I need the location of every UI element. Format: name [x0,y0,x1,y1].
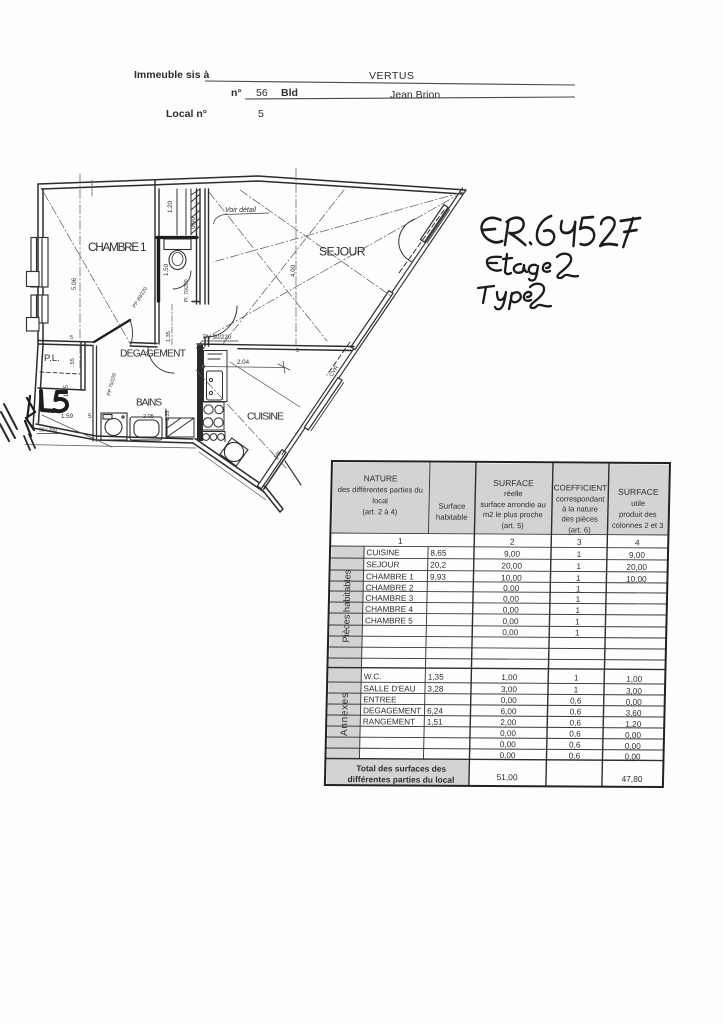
svg-text:DEGAGEMENT: DEGAGEMENT [120,349,186,360]
svg-text:4.00: 4.00 [290,264,297,277]
svg-text:1,00: 1,00 [626,675,643,684]
svg-text:des pièces: des pièces [562,514,599,523]
svg-text:3,00: 3,00 [501,685,518,694]
svg-text:1: 1 [576,595,581,604]
svg-text:W.C.: W.C. [364,672,382,681]
svg-text:5: 5 [88,413,92,420]
svg-text:1: 1 [575,628,580,637]
svg-text:SEJOUR: SEJOUR [366,560,399,569]
svg-text:0,6: 0,6 [570,707,582,716]
svg-text:PV 30/220: PV 30/220 [203,335,232,341]
svg-text:0,6: 0,6 [569,718,581,727]
svg-text:Total des surfaces des: Total des surfaces des [356,763,446,774]
svg-text:P.L.: P.L. [44,353,60,364]
svg-text:0,00: 0,00 [625,731,642,740]
svg-text:0.90: 0.90 [190,216,197,229]
svg-text:m2 le plus proche: m2 le plus proche [483,510,543,519]
svg-text:10,00: 10,00 [626,575,647,584]
svg-text:0,00: 0,00 [502,617,519,626]
svg-text:2,00: 2,00 [500,718,517,727]
svg-text:0,6: 0,6 [569,729,581,738]
svg-text:2.05: 2.05 [143,414,154,420]
svg-text:3,28: 3,28 [427,685,444,694]
svg-text:RANGEMENT: RANGEMENT [363,717,416,726]
svg-text:local: local [372,496,388,505]
svg-text:4: 4 [635,537,640,547]
svg-text:1.50: 1.50 [163,263,170,276]
svg-text:0,00: 0,00 [502,628,519,637]
svg-text:Annexes: Annexes [339,692,351,736]
svg-text:SEJOUR: SEJOUR [319,245,366,259]
svg-text:SURFACE: SURFACE [493,478,534,488]
svg-text:9,93: 9,93 [430,573,447,582]
svg-text:Voir détail: Voir détail [225,207,256,214]
svg-text:surface arrondie au: surface arrondie au [480,500,546,509]
svg-text:1.59: 1.59 [61,413,74,420]
svg-text:0,6: 0,6 [570,696,582,705]
svg-text:PP 89/220: PP 89/220 [132,286,150,309]
svg-text:utile: utile [631,499,645,508]
svg-text:6,24: 6,24 [427,707,444,716]
svg-text:0,00: 0,00 [500,740,517,749]
svg-text:1,20: 1,20 [625,720,642,729]
svg-text:(art. 2 à 4): (art. 2 à 4) [362,507,398,516]
svg-text:DEGAGEMENT: DEGAGEMENT [363,706,421,715]
svg-text:1: 1 [575,606,580,615]
svg-text:PP 75/229: PP 75/229 [106,372,118,396]
svg-text:20,2: 20,2 [430,561,447,570]
svg-text:colonnes 2 et 3: colonnes 2 et 3 [612,521,664,530]
svg-text:(art. 5): (art. 5) [501,521,524,530]
svg-text:9,00: 9,00 [504,550,521,559]
svg-text:47,80: 47,80 [621,774,643,784]
svg-text:5: 5 [70,335,73,341]
svg-text:Pl. 70/200: Pl. 70/200 [184,279,190,302]
svg-text:0,00: 0,00 [625,742,642,751]
svg-text:1,35: 1,35 [428,673,445,682]
svg-text:COEFFICIENT: COEFFICIENT [554,483,608,492]
svg-text:1.20: 1.20 [167,200,174,213]
svg-text:6,00: 6,00 [500,707,517,716]
svg-text:CHAMBRE 5: CHAMBRE 5 [365,616,413,625]
svg-text:1: 1 [574,685,579,694]
svg-text:20,00: 20,00 [626,563,647,572]
svg-text:0,00: 0,00 [626,698,643,707]
svg-text:90 / 200: 90 / 200 [39,428,57,434]
svg-text:1: 1 [577,550,582,559]
svg-text:1.35: 1.35 [165,411,171,422]
svg-text:5.06: 5.06 [71,277,78,290]
svg-text:9,00: 9,00 [629,551,646,560]
svg-text:1,51: 1,51 [427,718,444,727]
svg-text:.55: .55 [70,358,76,366]
svg-text:SALLE D'EAU: SALLE D'EAU [363,684,415,693]
svg-text:des différentes parties du: des différentes parties du [338,485,423,495]
svg-text:1: 1 [575,617,580,626]
svg-text:0,00: 0,00 [503,584,520,593]
svg-text:0,6: 0,6 [569,751,581,760]
svg-text:1: 1 [576,584,581,593]
svg-text:2.04: 2.04 [237,359,250,366]
svg-text:CUISINE: CUISINE [366,548,400,557]
svg-text:10,00: 10,00 [501,574,522,583]
svg-text:1,00: 1,00 [501,673,518,682]
svg-text:NATURE: NATURE [364,473,398,483]
svg-text:0,00: 0,00 [501,696,518,705]
svg-text:0,00: 0,00 [500,729,517,738]
svg-text:(art. 6): (art. 6) [568,525,591,534]
svg-text:à la nature: à la nature [562,504,598,513]
svg-text:56: 56 [256,87,268,99]
svg-text:0,00: 0,00 [624,752,641,761]
svg-text:5: 5 [258,108,264,120]
svg-text:ENTREE: ENTREE [363,695,397,704]
svg-text:20,00: 20,00 [501,562,522,571]
svg-text:3,00: 3,00 [626,687,643,696]
svg-text:Surface: Surface [438,502,465,511]
svg-text:Bld: Bld [281,87,298,99]
svg-text:différentes parties du local: différentes parties du local [348,774,455,785]
svg-text:Pièces habitables: Pièces habitables [341,569,353,642]
svg-text:5: 5 [296,348,299,354]
svg-text:habitable: habitable [436,513,468,522]
svg-text:2: 2 [510,537,515,547]
svg-text:réelle: réelle [504,489,523,498]
svg-text:CHAMBRE 4: CHAMBRE 4 [365,605,413,614]
svg-text:CUISINE: CUISINE [247,411,284,423]
svg-text:Immeuble sis à: Immeuble sis à [134,69,209,81]
svg-text:3: 3 [577,537,582,547]
svg-text:SURFACE: SURFACE [618,487,659,497]
svg-text:8,65: 8,65 [430,549,447,558]
svg-text:1.35: 1.35 [166,331,172,342]
svg-text:n°: n° [231,87,242,99]
svg-text:produit des: produit des [619,510,657,519]
svg-text:1: 1 [576,562,581,571]
svg-text:3,60: 3,60 [625,709,642,718]
svg-text:0,6: 0,6 [569,740,581,749]
svg-text:0,00: 0,00 [499,751,516,760]
svg-text:1: 1 [398,536,403,546]
svg-text:Jean Brion: Jean Brion [390,89,440,101]
svg-text:1: 1 [574,673,579,682]
svg-text:VERTUS: VERTUS [369,70,414,82]
svg-text:Local n°: Local n° [166,108,207,120]
svg-text:CHAMBRE 1: CHAMBRE 1 [88,240,147,254]
svg-text:51,00: 51,00 [496,772,518,782]
svg-text:1: 1 [576,574,581,583]
svg-text:0,00: 0,00 [503,606,520,615]
svg-text:0,00: 0,00 [503,595,520,604]
svg-text:CHAMBRE 2: CHAMBRE 2 [366,583,414,592]
svg-text:CHAMBRE 3: CHAMBRE 3 [365,594,413,603]
svg-text:CHAMBRE 1: CHAMBRE 1 [366,572,414,581]
svg-text:BAINS: BAINS [136,398,162,409]
svg-text:correspondant: correspondant [556,494,606,503]
